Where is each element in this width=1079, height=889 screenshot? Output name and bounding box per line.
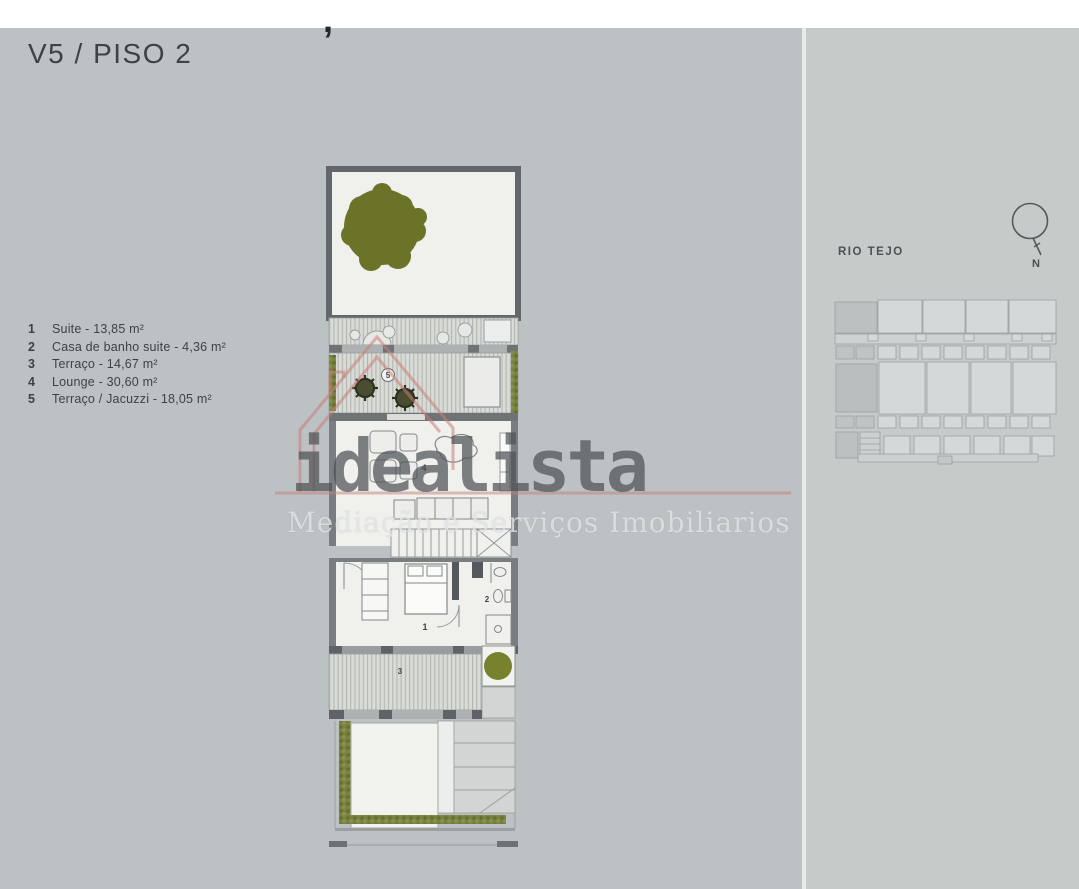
legend-label: Terraço / Jacuzzi - 18,05 m² (52, 392, 212, 406)
small-tree-icon (484, 652, 512, 680)
legend-item-suite: 1 Suite - 13,85 m² (28, 322, 226, 336)
patio-court (351, 723, 438, 828)
roof-terrace (329, 169, 518, 318)
jacuzzi-terrace: 5 (329, 351, 518, 421)
legend-num: 3 (28, 357, 52, 371)
planter-strip (329, 355, 336, 411)
legend-item-terrace: 3 Terraço - 14,67 m² (28, 357, 226, 371)
legend-num: 4 (28, 375, 52, 389)
stray-comma-mark: , (323, 2, 333, 38)
legend-label: Suite - 13,85 m² (52, 322, 144, 336)
legend-label: Lounge - 30,60 m² (52, 375, 158, 389)
north-label: N (1032, 258, 1040, 270)
room-legend: 1 Suite - 13,85 m² 2 Casa de banho suite… (28, 322, 226, 410)
room-number-bathroom: 2 (485, 595, 490, 604)
room-number-jacuzzi: 5 (386, 371, 391, 380)
legend-num: 5 (28, 392, 52, 406)
bed (405, 564, 447, 614)
planter-strip (511, 351, 518, 413)
page-title: V5 / PISO 2 (28, 38, 192, 70)
legend-label: Terraço - 14,67 m² (52, 357, 158, 371)
wardrobe (362, 563, 388, 620)
hedge-strip (339, 815, 506, 824)
terrace-room: 3 (329, 646, 515, 719)
legend-item-bathroom: 2 Casa de banho suite - 4,36 m² (28, 340, 226, 354)
panel-divider (802, 28, 806, 889)
hedge-strip (339, 721, 351, 821)
site-unit-highlighted (836, 364, 877, 412)
legend-item-lounge: 4 Lounge - 30,60 m² (28, 375, 226, 389)
site-unit-highlighted (835, 302, 877, 333)
river-label: RIO TEJO (838, 246, 904, 258)
upper-deck (329, 318, 518, 353)
legend-item-jacuzzi: 5 Terraço / Jacuzzi - 18,05 m² (28, 392, 226, 406)
site-plan-drawing (828, 296, 1060, 468)
room-number-lounge: 4 (421, 463, 426, 473)
garden-stairs (454, 721, 515, 813)
top-white-strip (0, 0, 1079, 28)
floor-plan-drawing: 5 4 (325, 165, 522, 847)
lower-garden (329, 721, 518, 847)
lounge-room: 4 (329, 421, 518, 562)
page: , V5 / PISO 2 1 Suite - 13,85 m² 2 Casa … (0, 0, 1079, 889)
site-unit-highlighted (836, 432, 858, 458)
legend-num: 1 (28, 322, 52, 336)
north-arrow-icon: N (1000, 193, 1070, 271)
legend-num: 2 (28, 340, 52, 354)
legend-label: Casa de banho suite - 4,36 m² (52, 340, 226, 354)
room-number-suite: 1 (422, 622, 427, 632)
stairs (391, 529, 511, 557)
suite-room: 1 2 (329, 562, 518, 654)
jacuzzi (464, 357, 500, 407)
room-number-terrace: 3 (398, 667, 403, 676)
sofa (394, 498, 488, 519)
